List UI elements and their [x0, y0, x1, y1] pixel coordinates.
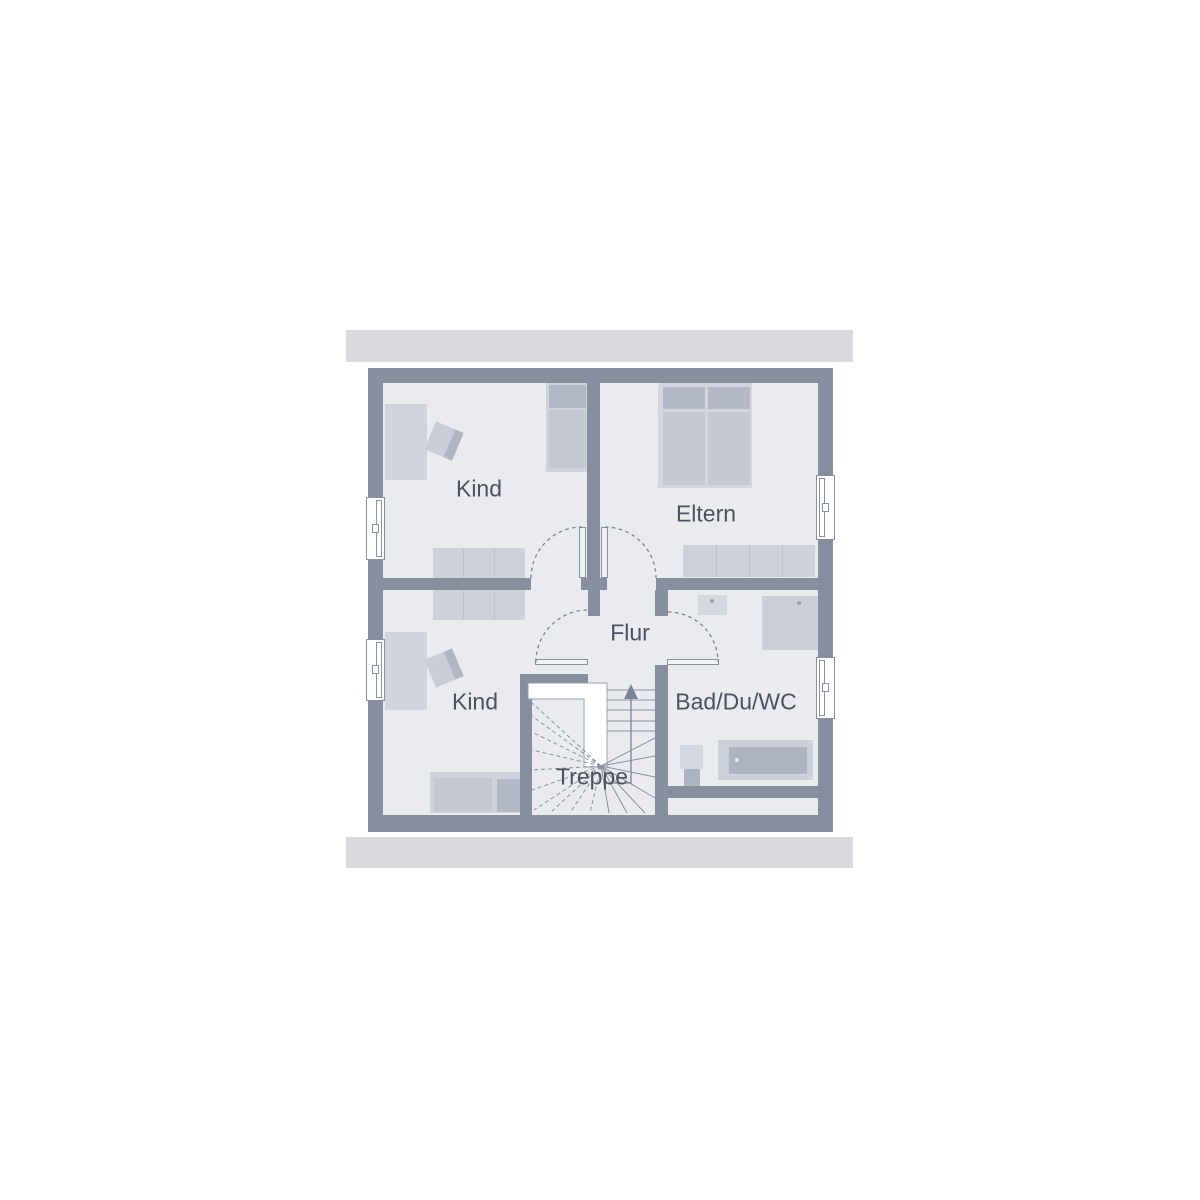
stairs-and-door-swings	[0, 0, 1200, 1200]
room-label-kind-top: Kind	[456, 476, 502, 503]
room-label-kind-bottom: Kind	[452, 689, 498, 716]
door-swing-arc	[668, 612, 718, 662]
door-swing-arc	[605, 527, 656, 578]
door-swing-arc	[531, 527, 582, 578]
room-label-bad: Bad/Du/WC	[675, 689, 796, 716]
door-swing-arc	[536, 610, 588, 662]
room-label-eltern: Eltern	[676, 501, 736, 528]
room-label-flur: Flur	[610, 620, 650, 647]
stair-up-arrow-icon	[624, 684, 638, 699]
room-label-treppe: Treppe	[556, 764, 628, 791]
stair-void	[528, 683, 607, 767]
floor-plan: Kind Eltern Flur Kind Bad/Du/WC Treppe	[0, 0, 1200, 1200]
